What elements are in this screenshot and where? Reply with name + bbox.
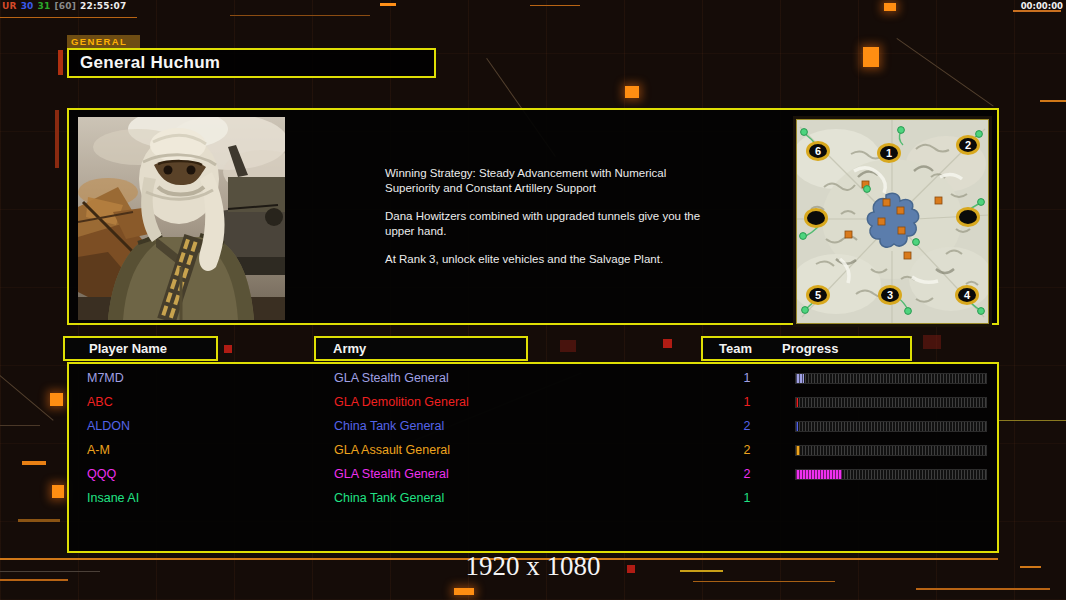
- deco-square: [663, 339, 672, 348]
- table-row: ALDON China Tank General 2: [71, 414, 991, 438]
- player-army: China Tank General: [334, 414, 444, 438]
- resolution-label: 1920 x 1080: [0, 551, 1066, 582]
- deco-line: [997, 420, 1066, 421]
- progress-fill: [796, 422, 798, 431]
- header-label: Player Name: [89, 341, 167, 356]
- page-title: General Huchum: [67, 48, 436, 78]
- player-team: 2: [734, 462, 760, 486]
- map-position-number: 3: [887, 289, 893, 301]
- player-army: GLA Assault General: [334, 438, 450, 462]
- table-row: M7MD GLA Stealth General 1: [71, 366, 991, 390]
- loading-screen: UR3031[60]22:55:07 00:00:00 GENERAL Gene…: [0, 0, 1066, 600]
- progress-bar: [795, 421, 987, 432]
- header-label: Army: [333, 341, 366, 356]
- column-header-army: Army: [314, 336, 528, 361]
- strategy-text: Winning Strategy: Steady Advancement wit…: [385, 166, 711, 281]
- table-row: QQQ GLA Stealth General 2: [71, 462, 991, 486]
- map-position-number: 5: [815, 289, 821, 301]
- map-position-number: 1: [886, 147, 892, 159]
- deco-line: [380, 3, 396, 6]
- table-row: A-M GLA Assault General 2: [71, 438, 991, 462]
- deco-line: [230, 15, 370, 16]
- player-army: GLA Stealth General: [334, 366, 449, 390]
- deco-square: [52, 485, 64, 498]
- deco-square: [884, 3, 896, 11]
- deco-line: [530, 5, 580, 6]
- map-preview: 6 1 2 5 3 4: [793, 116, 992, 327]
- table-row: Insane AI China Tank General 1: [71, 486, 991, 510]
- player-team: 1: [734, 390, 760, 414]
- deco-diagonal: [896, 38, 993, 107]
- deco-line: [18, 519, 60, 522]
- strategy-paragraph: At Rank 3, unlock elite vehicles and the…: [385, 252, 711, 267]
- deco-square: [454, 588, 474, 595]
- player-team: 1: [734, 366, 760, 390]
- fps-stats-overlay: UR3031[60]22:55:07: [2, 1, 130, 11]
- deco-line: [55, 110, 59, 168]
- stat-token: 30: [21, 1, 34, 11]
- deco-square: [863, 47, 879, 67]
- deco-square: [923, 335, 941, 349]
- general-tab-label: GENERAL: [67, 35, 140, 48]
- map-art: 6 1 2 5 3 4: [796, 119, 989, 324]
- stat-token: 22:55:07: [80, 1, 126, 11]
- column-header-player-name: Player Name: [63, 336, 218, 361]
- deco-square: [625, 86, 639, 98]
- progress-bar: [795, 397, 987, 408]
- player-name: ALDON: [87, 414, 130, 438]
- portrait-art: [78, 117, 285, 320]
- player-army: GLA Demolition General: [334, 390, 469, 414]
- progress-fill: [796, 398, 798, 407]
- header-label: Team: [719, 341, 752, 356]
- progress-fill: [796, 446, 800, 455]
- table-row: ABC GLA Demolition General 1: [71, 390, 991, 414]
- deco-line: [58, 50, 63, 75]
- general-portrait: [78, 117, 285, 320]
- deco-line: [22, 461, 46, 465]
- player-army: China Tank General: [334, 486, 444, 510]
- map-position-number: 2: [965, 139, 971, 151]
- stat-token: UR: [2, 1, 17, 11]
- deco-line: [0, 17, 137, 18]
- strategy-paragraph: Dana Howitzers combined with upgraded tu…: [385, 209, 711, 238]
- stat-token: 31: [38, 1, 51, 11]
- deco-diagonal: [0, 375, 54, 421]
- deco-square: [560, 340, 576, 352]
- deco-square: [50, 393, 63, 406]
- progress-bar: [795, 373, 987, 384]
- strategy-paragraph: Winning Strategy: Steady Advancement wit…: [385, 166, 711, 195]
- deco-line: [1040, 100, 1066, 102]
- deco-line: [916, 588, 1050, 590]
- progress-fill: [796, 374, 804, 383]
- deco-square: [224, 345, 232, 353]
- player-name: Insane AI: [87, 486, 139, 510]
- player-name: ABC: [87, 390, 113, 414]
- stat-token: [60]: [55, 1, 77, 11]
- player-army: GLA Stealth General: [334, 462, 449, 486]
- progress-bar: [795, 445, 987, 456]
- header-label: Progress: [782, 341, 838, 356]
- general-info-panel: Winning Strategy: Steady Advancement wit…: [67, 108, 999, 325]
- map-position-number: 4: [964, 289, 971, 301]
- deco-line: [0, 425, 40, 426]
- game-timer: 00:00:00: [1021, 1, 1063, 11]
- player-name: M7MD: [87, 366, 124, 390]
- player-list-panel: M7MD GLA Stealth General 1 ABC GLA Demol…: [67, 362, 999, 553]
- column-header-team-progress: TeamProgress: [701, 336, 912, 361]
- player-team: 1: [734, 486, 760, 510]
- progress-bar: [795, 469, 987, 480]
- player-team: 2: [734, 438, 760, 462]
- player-name: A-M: [87, 438, 110, 462]
- map-position-number: 6: [815, 145, 821, 157]
- player-name: QQQ: [87, 462, 116, 486]
- player-team: 2: [734, 414, 760, 438]
- progress-fill: [796, 470, 842, 479]
